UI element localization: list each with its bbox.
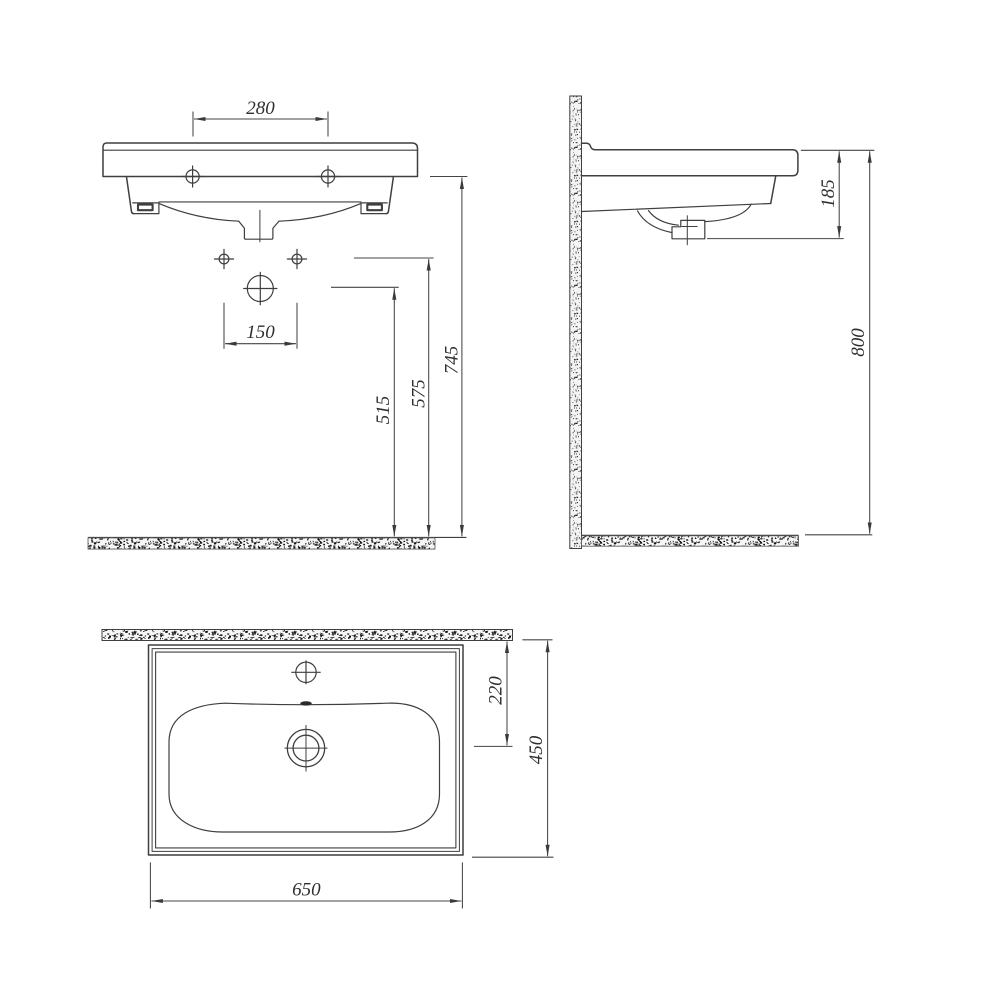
svg-text:515: 515 — [373, 396, 394, 425]
svg-text:150: 150 — [246, 322, 275, 343]
svg-text:650: 650 — [292, 879, 321, 900]
svg-text:185: 185 — [818, 179, 839, 208]
svg-text:575: 575 — [409, 379, 430, 408]
svg-text:280: 280 — [246, 98, 275, 119]
svg-text:745: 745 — [442, 346, 463, 375]
svg-text:450: 450 — [526, 735, 547, 764]
svg-text:800: 800 — [848, 328, 869, 357]
svg-text:220: 220 — [486, 676, 507, 705]
